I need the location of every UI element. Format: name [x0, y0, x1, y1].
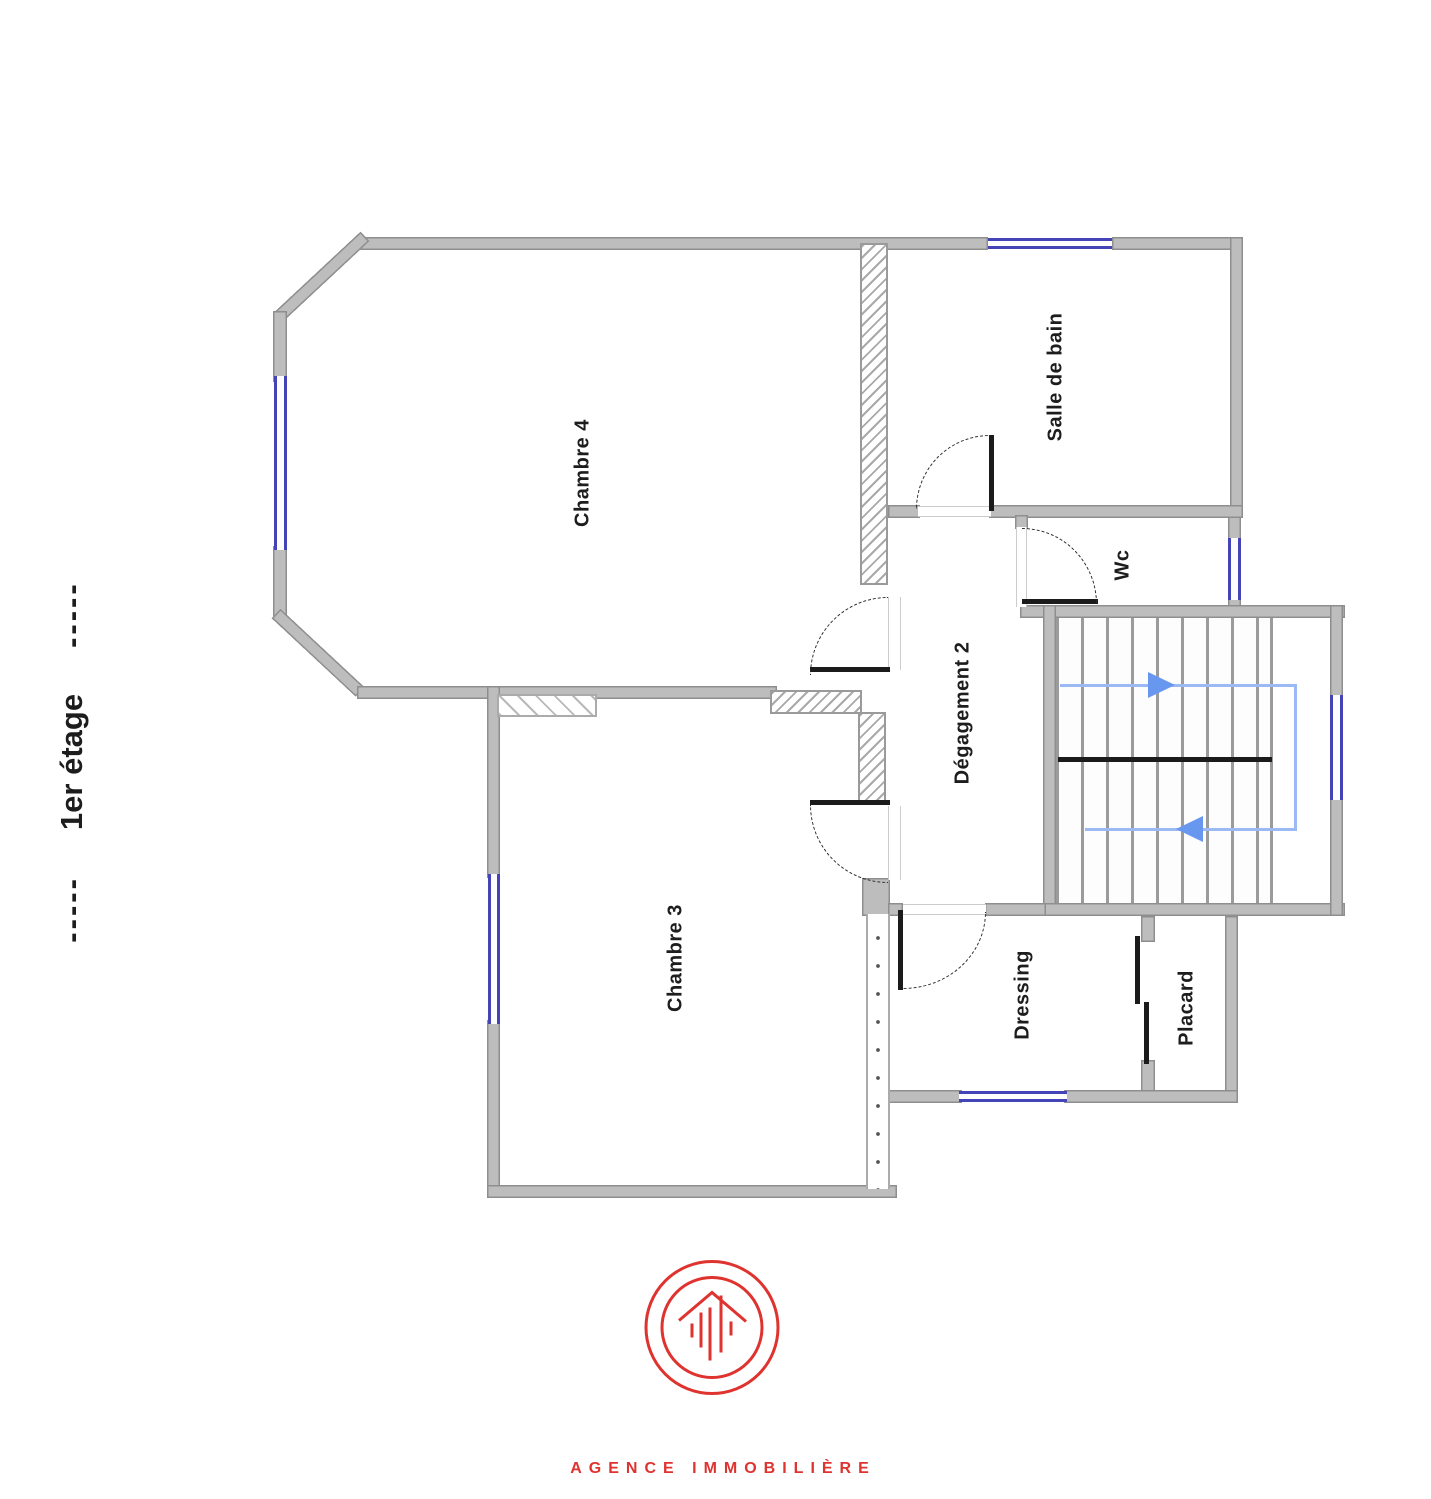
floor-plan-page: ----- 1er étage ----- [0, 0, 1431, 1499]
wall-dressing-bottom-right [1064, 1090, 1238, 1103]
room-label-degagement-2: Dégagement 2 [952, 642, 975, 785]
wall-stair-left [1043, 605, 1056, 916]
wall-bay-upper [273, 311, 287, 382]
wall-stair-top [1020, 605, 1345, 618]
door-arc-chambre4 [810, 597, 888, 675]
window-dressing-bottom [959, 1091, 1067, 1102]
floor-title-label: 1er étage [54, 694, 90, 830]
wall-corner-block [862, 878, 890, 916]
floor-title: ----- 1er étage ----- [54, 581, 90, 942]
stair-direction-right-arrow-icon [1148, 672, 1175, 698]
hatched-wall-vertical [860, 243, 888, 585]
window-salle-de-bain-top [988, 238, 1112, 249]
wall-top-left [357, 237, 988, 250]
room-label-wc: Wc [1112, 550, 1135, 581]
agency-name-label: AGENCE IMMOBILIÈRE [570, 1460, 876, 1478]
stair-path-top [1060, 684, 1296, 687]
threshold-chambre3-door [888, 806, 901, 880]
hatched-wall-lower [858, 712, 886, 804]
room-label-salle-de-bain: Salle de bain [1045, 313, 1068, 442]
wall-bay-diagonal-bottom [272, 609, 365, 697]
door-arc-dressing [903, 912, 986, 989]
wall-top-right [1112, 237, 1243, 250]
wall-placard-divider-top [1141, 916, 1155, 942]
room-label-chambre-3: Chambre 3 [665, 904, 688, 1012]
room-label-placard: Placard [1176, 970, 1199, 1046]
door-arc-chambre3 [810, 805, 888, 883]
room-label-dressing: Dressing [1012, 950, 1035, 1040]
agency-house-logo-icon [642, 1258, 782, 1403]
wall-chambre3-bottom [487, 1185, 897, 1198]
wall-chambre3-left-lower [487, 1020, 500, 1198]
hatched-wall-light [497, 694, 597, 717]
stair-path-right [1294, 684, 1297, 831]
room-label-chambre-4: Chambre 4 [572, 419, 595, 527]
floor-title-leading-dashes: ----- [54, 876, 90, 943]
stair-direction-left-arrow-icon [1176, 816, 1203, 842]
window-chambre3-left [488, 874, 500, 1024]
floor-title-trailing-dashes: ----- [54, 581, 90, 648]
door-arc-salle-de-bain [916, 435, 990, 509]
wall-dressing-top-right [985, 903, 1046, 916]
wall-right-outer-upper [1330, 605, 1343, 699]
agency-logo-svg [642, 1258, 782, 1398]
sliding-door-placard-upper [1135, 936, 1140, 1004]
wall-placard-right [1225, 916, 1238, 1103]
wall-placard-divider-bottom [1141, 1060, 1155, 1093]
hatched-wall-horizontal [770, 690, 862, 714]
wall-bay-lower [273, 546, 287, 618]
window-bay-chambre4 [274, 376, 287, 550]
wall-bay-diagonal-top [274, 232, 370, 323]
window-stair-right [1330, 695, 1343, 800]
wall-salle-de-bain-right [1230, 237, 1243, 518]
wall-stair-bottom [1043, 903, 1345, 916]
wall-right-outer-lower [1330, 797, 1343, 916]
window-wc-right [1228, 538, 1241, 600]
threshold-chambre4-door [888, 597, 901, 670]
dotted-wall-chambre3-right [866, 914, 890, 1189]
door-arc-wc [1022, 528, 1097, 604]
sliding-door-placard-lower [1144, 1002, 1149, 1064]
stair-mid-line [1058, 757, 1272, 762]
